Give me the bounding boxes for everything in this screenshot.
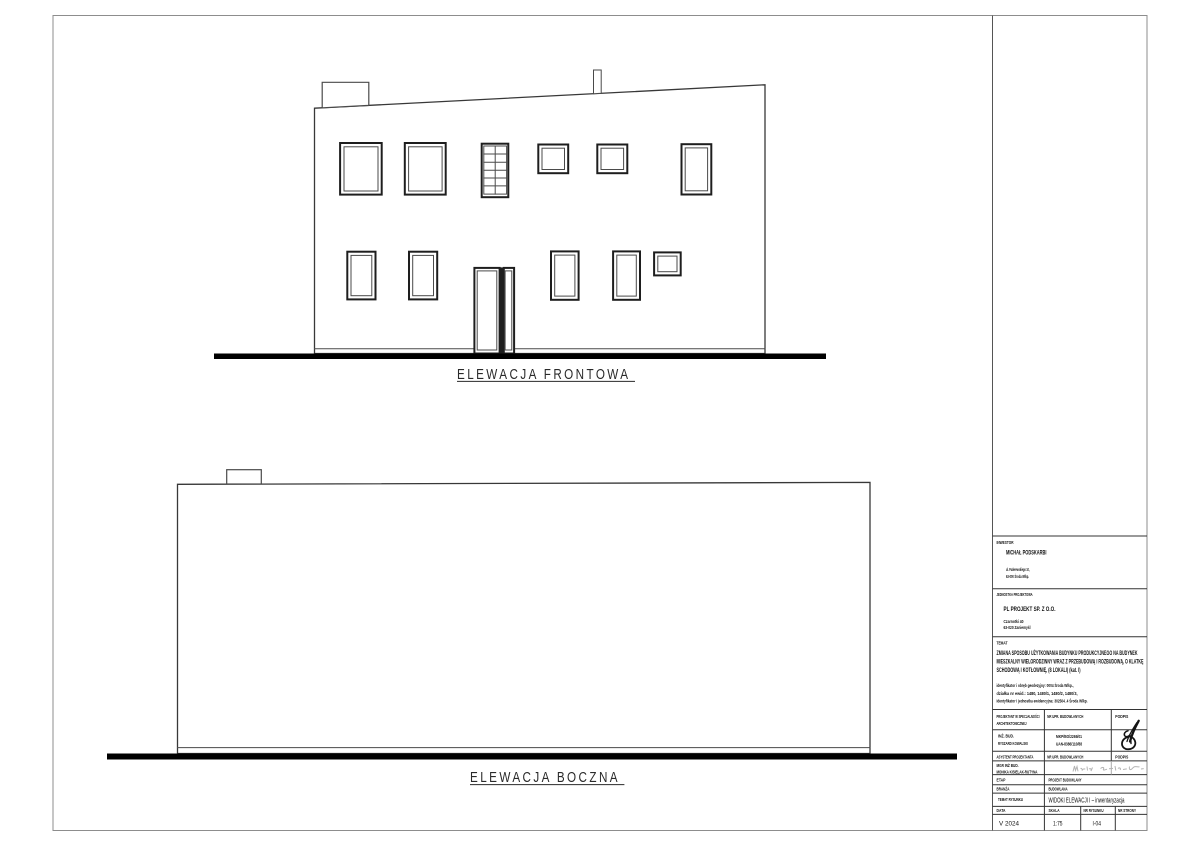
svg-text:PROJEKTANT W SPECJALNOŚCI: PROJEKTANT W SPECJALNOŚCI xyxy=(997,713,1040,719)
svg-text:PODPIS: PODPIS xyxy=(1115,754,1128,759)
svg-text:MGR INŻ BUD.: MGR INŻ BUD. xyxy=(997,762,1019,768)
svg-text:JEDNOSTKA PROJEKTOWA: JEDNOSTKA PROJEKTOWA xyxy=(997,592,1033,597)
svg-text:MIESZKALNY WIELORODZINNY WRAZ: MIESZKALNY WIELORODZINNY WRAZ Z PRZEBUDO… xyxy=(997,659,1144,666)
svg-text:BUDOWLANA: BUDOWLANA xyxy=(1049,786,1068,791)
svg-text:RYSZARD KOWALSKI: RYSZARD KOWALSKI xyxy=(998,741,1028,746)
svg-text:MONIKA KISIELAK-RUTYNA: MONIKA KISIELAK-RUTYNA xyxy=(997,769,1038,774)
svg-text:Czarnotki 40: Czarnotki 40 xyxy=(1004,619,1024,624)
svg-text:SCHODOWĄ I KOTŁOWNIĘ, (8 LOKAL: SCHODOWĄ I KOTŁOWNIĘ, (8 LOKALI) (kat. I… xyxy=(997,667,1081,674)
svg-text:WIDOKI ELEWACJI I – inwentaryz: WIDOKI ELEWACJI I – inwentaryzacja xyxy=(1049,797,1125,804)
svg-text:PROJEKT BUDOWLANY: PROJEKT BUDOWLANY xyxy=(1049,778,1082,783)
svg-text:NR UPR. BUDOWLANYCH: NR UPR. BUDOWLANYCH xyxy=(1047,714,1083,719)
svg-text:BRANŻA: BRANŻA xyxy=(997,785,1010,791)
svg-text:działka nr ewid.: 1480, 1480/1: działka nr ewid.: 1480, 1480/1, 1480/2, … xyxy=(997,691,1079,697)
svg-text:PODPIS: PODPIS xyxy=(1115,714,1128,719)
svg-text:ETAP: ETAP xyxy=(997,778,1006,783)
svg-text:SKALA: SKALA xyxy=(1049,808,1060,813)
svg-text:1:75: 1:75 xyxy=(1053,821,1063,828)
svg-text:ul. Paderewskiego 10,: ul. Paderewskiego 10, xyxy=(1006,567,1030,572)
svg-text:UAN-8386/110/88: UAN-8386/110/88 xyxy=(1056,742,1082,747)
svg-text:INŻ. BUD.: INŻ. BUD. xyxy=(998,733,1014,739)
svg-text:ELEWACJA BOCZNA: ELEWACJA BOCZNA xyxy=(470,769,620,786)
svg-text:TEMAT RYSUNKU: TEMAT RYSUNKU xyxy=(998,797,1023,802)
svg-text:identyfikator i jednostka ewid: identyfikator i jednostka ewidencyjna: 3… xyxy=(997,698,1088,705)
svg-text:DATA: DATA xyxy=(997,808,1007,813)
svg-text:identyfikator i obręb geodezyj: identyfikator i obręb geodezyjny: 0004 Ś… xyxy=(997,682,1074,689)
svg-text:INWESTOR: INWESTOR xyxy=(997,540,1014,545)
svg-text:ELEWACJA FRONTOWA: ELEWACJA FRONTOWA xyxy=(457,366,631,383)
svg-text:NR STRONY: NR STRONY xyxy=(1118,808,1136,813)
svg-text:NR UPR. BUDOWLANYCH: NR UPR. BUDOWLANYCH xyxy=(1047,754,1083,759)
svg-text:MKP/BO/2265/01: MKP/BO/2265/01 xyxy=(1056,734,1082,739)
svg-text:ARCHITEKTONICZNEJ: ARCHITEKTONICZNEJ xyxy=(997,721,1027,726)
svg-text:MICHAŁ PODSKARBI: MICHAŁ PODSKARBI xyxy=(1006,550,1047,557)
svg-text:PL PROJEKT SP. Z O.O.: PL PROJEKT SP. Z O.O. xyxy=(1004,606,1056,613)
svg-text:I-04: I-04 xyxy=(1093,821,1102,828)
svg-text:V 2024: V 2024 xyxy=(999,821,1019,828)
svg-text:63-020 Zaniemyśl: 63-020 Zaniemyśl xyxy=(1004,625,1031,630)
svg-text:ASYSTENT PROJEKTANTA: ASYSTENT PROJEKTANTA xyxy=(997,754,1034,759)
svg-text:TEMAT: TEMAT xyxy=(997,641,1008,646)
svg-text:ZMIANA SPOSOBU UŻYTKOWANIA BUD: ZMIANA SPOSOBU UŻYTKOWANIA BUDYNKU PRODU… xyxy=(997,650,1138,657)
svg-text:NR RYSUNKU: NR RYSUNKU xyxy=(1084,808,1104,813)
svg-text:63-000 Środa Wlkp.: 63-000 Środa Wlkp. xyxy=(1006,573,1029,579)
